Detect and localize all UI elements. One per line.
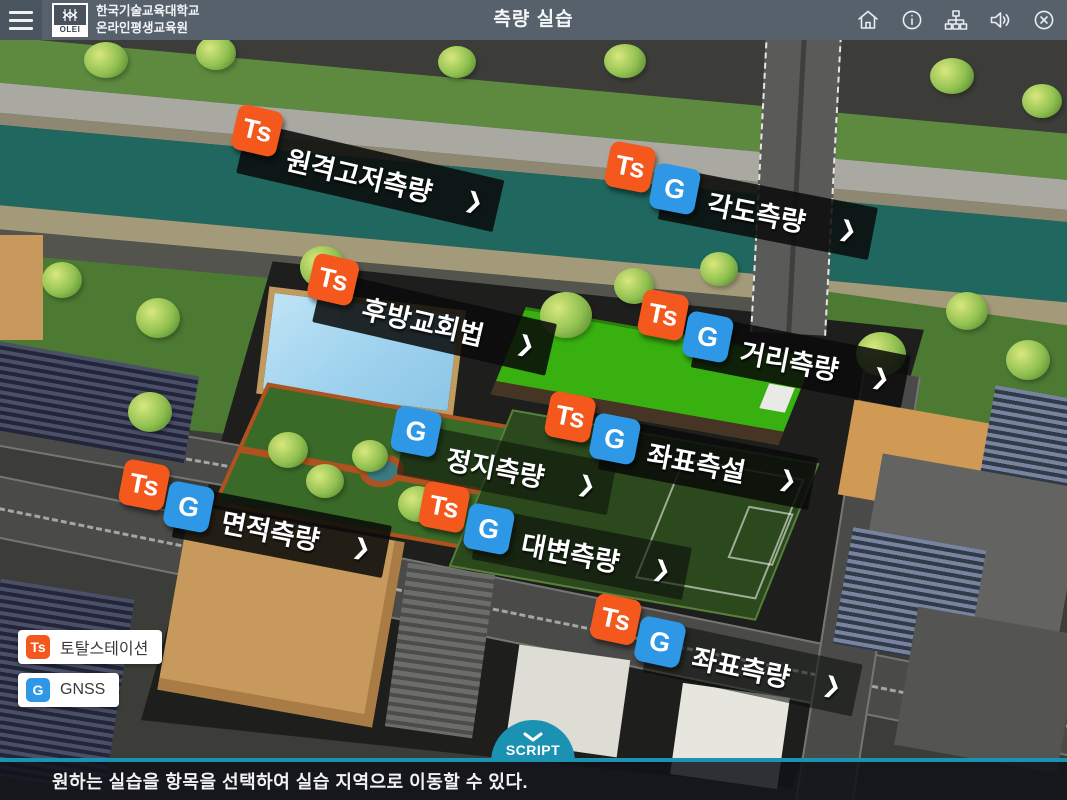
tree [1022, 84, 1062, 118]
sitemap-icon [943, 8, 969, 32]
ts-badge: Ts [26, 635, 50, 659]
close-button[interactable] [1031, 7, 1057, 33]
tree [306, 464, 344, 498]
sound-icon [988, 8, 1012, 32]
building [0, 235, 43, 340]
chevron-right-icon: ❯ [836, 215, 859, 244]
footer-message: 원하는 실습을 항목을 선택하여 실습 지역으로 이동할 수 있다. [52, 768, 528, 794]
gnss-badge: G [681, 310, 735, 364]
chevron-right-icon: ❯ [350, 533, 373, 562]
tree [42, 262, 82, 298]
gnss-badge: G [162, 480, 216, 534]
sound-button[interactable] [987, 7, 1013, 33]
chevron-down-icon [522, 732, 544, 742]
legend-label: GNSS [60, 681, 105, 699]
gnss-badge: G [633, 615, 688, 670]
tree [946, 292, 988, 330]
gnss-badge: G [648, 162, 702, 216]
map-item-label: 면적측량 [218, 501, 323, 558]
olei-logo-emblem [54, 5, 86, 25]
tree [128, 392, 172, 432]
legend-label: 토탈스테이션 [60, 635, 148, 659]
map-item-label: 좌표측설 [644, 433, 749, 490]
footer-bar: 원하는 실습을 항목을 선택하여 실습 지역으로 이동할 수 있다. [0, 762, 1067, 800]
script-label: SCRIPT [506, 742, 560, 758]
legend-item-total-station: Ts 토탈스테이션 [18, 630, 162, 664]
gnss-badge: G [26, 678, 50, 702]
building [894, 607, 1067, 774]
tree [268, 432, 308, 468]
olei-logo-text: OLEI [54, 25, 86, 35]
top-icon-group [855, 0, 1057, 40]
chevron-right-icon: ❯ [514, 329, 538, 358]
legend: Ts 토탈스테이션 G GNSS [18, 630, 162, 707]
gnss-badge: G [389, 404, 443, 458]
chevron-right-icon: ❯ [869, 363, 892, 392]
ts-badge: Ts [636, 288, 690, 342]
home-button[interactable] [855, 7, 881, 33]
page-title: 측량 실습 [493, 0, 573, 40]
tree [700, 252, 738, 286]
legend-item-gnss: G GNSS [18, 673, 119, 707]
info-button[interactable] [899, 7, 925, 33]
chevron-right-icon: ❯ [776, 465, 799, 494]
olei-logo: OLEI [52, 3, 88, 37]
chevron-right-icon: ❯ [575, 470, 598, 499]
ts-badge: Ts [417, 480, 471, 534]
tree [84, 42, 128, 78]
chevron-right-icon: ❯ [462, 186, 486, 215]
menu-icon[interactable] [0, 0, 42, 40]
info-icon [900, 8, 924, 32]
map-item-label: 대변측량 [518, 523, 623, 580]
tree [1006, 340, 1050, 380]
tree [930, 58, 974, 94]
map-item-label: 거리측량 [737, 331, 842, 388]
ts-badge: Ts [117, 458, 171, 512]
tree [604, 44, 646, 78]
sitemap-button[interactable] [943, 7, 969, 33]
tree [136, 298, 180, 338]
home-icon [856, 8, 880, 32]
tree [438, 46, 476, 78]
chevron-right-icon: ❯ [650, 555, 673, 584]
ts-badge: Ts [588, 592, 643, 647]
close-icon [1032, 8, 1056, 32]
gnss-badge: G [462, 502, 516, 556]
map-item-label: 각도측량 [704, 183, 809, 240]
org-name: 한국기술교육대학교 온라인평생교육원 [96, 3, 200, 37]
chevron-right-icon: ❯ [821, 671, 844, 700]
top-bar: OLEI 한국기술교육대학교 온라인평생교육원 측량 실습 [0, 0, 1067, 40]
ts-badge: Ts [603, 140, 657, 194]
